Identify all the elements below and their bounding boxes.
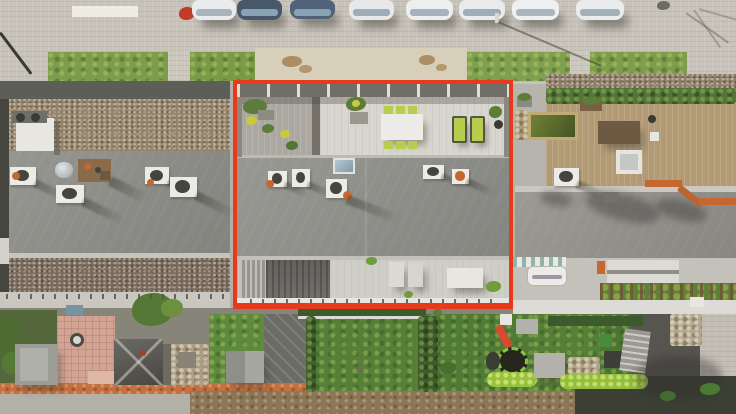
- objects-layer: [0, 0, 736, 414]
- pallet-item: [100, 171, 110, 180]
- stone-pile: [568, 357, 600, 375]
- parked-car: [290, 0, 335, 19]
- road-marking: [72, 6, 138, 17]
- shed-item: [178, 352, 196, 368]
- roof-vent: [554, 168, 579, 186]
- trampoline: [497, 347, 528, 375]
- tree-shadow: [699, 8, 736, 21]
- slide-platform: [500, 314, 512, 325]
- patio-table-top: [73, 336, 81, 344]
- slide: [494, 324, 512, 349]
- lamppost-shadow: [0, 32, 32, 75]
- vent-shadow: [108, 177, 150, 204]
- parked-car: [576, 0, 624, 20]
- parked-car: [192, 0, 236, 20]
- roof-vent: [170, 177, 197, 197]
- hip-roof-garage: [114, 339, 163, 385]
- lawn-shed-roof: [245, 351, 264, 383]
- roof-vent: [56, 185, 84, 203]
- shed-shadow-edge: [163, 344, 171, 385]
- panel-window: [607, 270, 679, 274]
- deck-chair: [650, 132, 659, 141]
- edge-sliver: [0, 238, 9, 264]
- dirt-patch: [299, 65, 312, 73]
- dirt-patch: [436, 64, 447, 71]
- hedge-column: [306, 316, 316, 392]
- lime-hedge: [487, 372, 537, 387]
- rear-box: [66, 305, 83, 315]
- skylight-glass: [620, 154, 638, 170]
- vent-accent: [147, 179, 154, 186]
- property-outline: [233, 80, 513, 309]
- orange-walkway: [645, 180, 682, 187]
- deck-item: [648, 115, 656, 123]
- shadow-shrub: [700, 383, 720, 395]
- balcony-plant: [433, 309, 442, 316]
- lamppost-shadow: [498, 21, 602, 67]
- rear-tree: [161, 299, 183, 317]
- vent-shadow: [81, 197, 126, 225]
- pond: [528, 112, 578, 140]
- vent-shadow: [194, 191, 237, 218]
- roof-shadow: [583, 185, 662, 228]
- orange-box: [597, 261, 605, 274]
- vent-accent: [12, 172, 20, 180]
- shrub: [440, 362, 456, 374]
- garden-figure: [356, 366, 361, 371]
- garden-shed-small: [516, 319, 538, 334]
- lime-hedge: [560, 374, 648, 389]
- caravan: [527, 266, 567, 286]
- aerial-photo-canvas: [0, 0, 736, 414]
- shed-roof: [20, 348, 48, 381]
- hedge-column: [418, 316, 438, 392]
- green-bin: [600, 334, 612, 347]
- retaining-wall: [670, 314, 702, 346]
- parked-car: [512, 0, 559, 20]
- rock-pile: [515, 110, 528, 140]
- parked-car: [237, 0, 282, 20]
- chimney: [140, 350, 146, 356]
- box-shadow-edge: [54, 121, 60, 155]
- patio-step: [88, 371, 114, 384]
- tree: [657, 1, 670, 10]
- vent-cap: [31, 113, 40, 122]
- rear-railing: [6, 294, 224, 299]
- rear-lawn-strip: [548, 316, 643, 326]
- vent-cap: [16, 113, 25, 122]
- orange-walkway: [699, 198, 736, 205]
- skylight-dome: [55, 162, 73, 178]
- dirt-patch: [282, 56, 302, 67]
- dirt-patch: [419, 55, 435, 65]
- garden-shed: [534, 353, 565, 378]
- pallet-item: [84, 163, 91, 170]
- balcony-rail: [298, 316, 426, 319]
- pergola: [600, 283, 736, 300]
- parked-car: [349, 0, 394, 20]
- wooden-table: [598, 121, 640, 144]
- roof-item: [604, 192, 618, 202]
- roof-shadow: [539, 189, 573, 208]
- white-item: [690, 297, 704, 307]
- parked-car: [406, 0, 453, 20]
